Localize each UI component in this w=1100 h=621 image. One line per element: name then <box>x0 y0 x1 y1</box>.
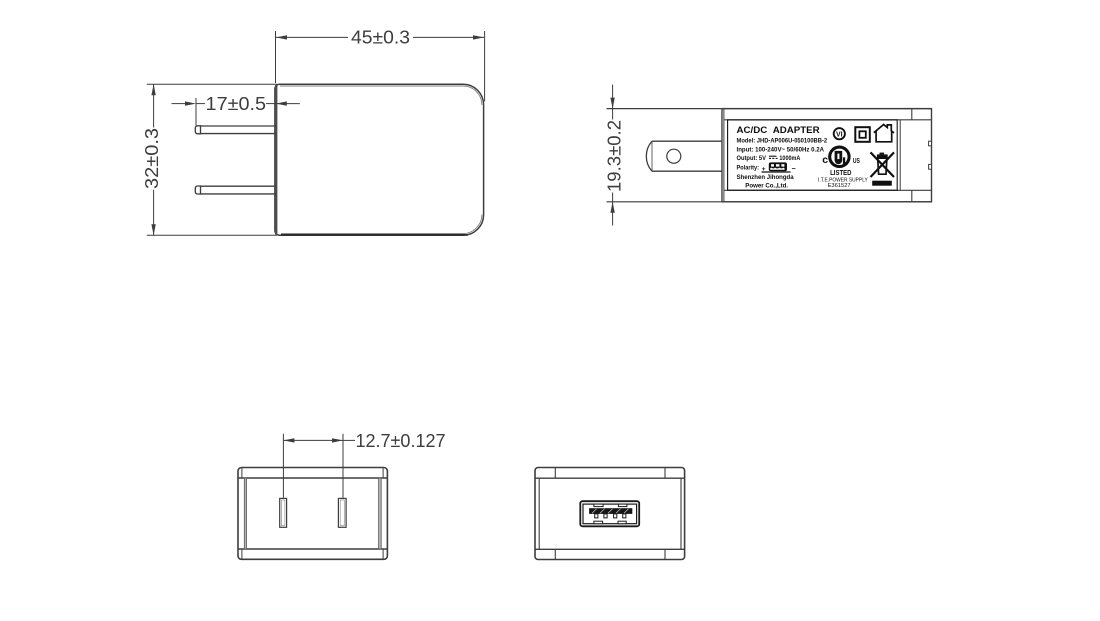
svg-text:45±0.3: 45±0.3 <box>351 28 410 48</box>
svg-text:1000mA: 1000mA <box>779 155 801 162</box>
svg-text:Polarity:: Polarity: <box>737 164 760 171</box>
svg-text:−: − <box>792 166 796 173</box>
svg-text:12.7±0.127: 12.7±0.127 <box>356 431 446 451</box>
svg-text:Output: 5V: Output: 5V <box>737 155 767 162</box>
svg-text:Power Co.,Ltd.: Power Co.,Ltd. <box>745 182 788 189</box>
svg-text:AC/DC ADAPTER: AC/DC ADAPTER <box>737 125 820 135</box>
svg-text:Shenzhen Jihongda: Shenzhen Jihongda <box>737 174 795 181</box>
svg-text:LISTED: LISTED <box>830 168 852 177</box>
svg-text:19.3±0.2: 19.3±0.2 <box>604 120 624 192</box>
svg-text:VI: VI <box>836 129 843 138</box>
svg-text:c: c <box>822 154 828 166</box>
svg-text:Input: 100-240V~ 50/60Hz 0.2: Input: 100-240V~ 50/60Hz 0.2A <box>737 146 825 153</box>
svg-text:Model: JHD-AP006U-050100BB-2: Model: JHD-AP006U-050100BB-2 <box>737 138 828 145</box>
svg-text:17±0.5: 17±0.5 <box>206 94 267 114</box>
svg-text:US: US <box>853 156 860 165</box>
svg-text:32±0.3: 32±0.3 <box>142 128 162 189</box>
svg-text:E361527: E361527 <box>828 183 851 189</box>
